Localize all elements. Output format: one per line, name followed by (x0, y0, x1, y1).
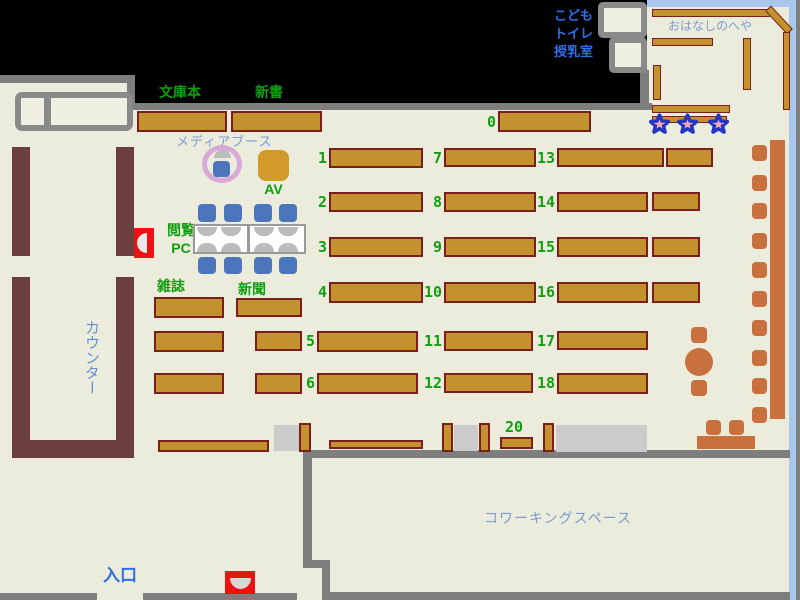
shelf-number: 1 (301, 149, 327, 167)
shelf-number: 3 (301, 238, 327, 256)
shelf-number: 12 (416, 374, 442, 392)
bookshelf-8 (444, 192, 536, 212)
counter-pillar-left (12, 147, 30, 256)
av-booth (258, 150, 289, 181)
bookshelf-3 (329, 237, 423, 257)
stool (752, 291, 767, 307)
story-room-wall-top (647, 0, 796, 7)
newspapers-label: 新聞 (238, 282, 266, 297)
media-booth-desk (214, 150, 231, 158)
pc-chair (279, 204, 297, 222)
shelf-number: 5 (289, 332, 315, 350)
counter-pillar-right (116, 147, 134, 256)
counter-u-left (12, 277, 30, 458)
coworking-wall-bottom (328, 592, 790, 600)
stool (752, 203, 767, 219)
av-label: AV (258, 182, 289, 197)
pc-table-divider (247, 224, 250, 254)
shelf-number: 17 (529, 332, 555, 350)
bookshelf-13 (557, 148, 664, 167)
stool (752, 145, 767, 161)
shelf-number: 8 (416, 193, 442, 211)
bookshelf-extra (652, 282, 700, 303)
bookshelf-14 (557, 192, 648, 212)
bookshelf-16 (557, 282, 648, 303)
stool (691, 327, 707, 343)
staff-table (15, 92, 133, 131)
counter-label: カウンター (84, 320, 98, 420)
wall-kidsroom-connector (640, 70, 649, 110)
bookshelf-7 (444, 148, 536, 167)
stool (706, 420, 721, 435)
coworking-wall-jog-h (303, 560, 330, 568)
floor-right (647, 7, 789, 600)
shelf-number: 11 (416, 332, 442, 350)
magazine-shelf (154, 331, 224, 352)
coworking-wall-left (303, 450, 312, 568)
story-room-label: おはなしのへや (668, 19, 752, 33)
bookshelf-0 (498, 111, 591, 132)
wall-bottom-left (0, 593, 97, 600)
story-room-wall-right (789, 0, 796, 600)
round-table (685, 348, 713, 376)
shelf-number: 18 (529, 374, 555, 392)
bookshelf-12 (444, 373, 533, 393)
stool (691, 380, 707, 396)
side-shelf (543, 423, 554, 452)
kids-toilet-room (598, 2, 647, 38)
nursing-room (609, 37, 647, 73)
pc-label: 閲覧 PC (166, 222, 196, 254)
bench (697, 436, 755, 449)
outer-wall-right (796, 0, 800, 600)
stool (752, 320, 767, 336)
star-icon (707, 113, 730, 136)
stool (752, 378, 767, 394)
bookshelf-1 (329, 148, 423, 168)
star-icon (676, 113, 699, 136)
shelf-number: 10 (416, 283, 442, 301)
shelf-number: 9 (416, 238, 442, 256)
entrance-label: 入口 (103, 568, 137, 583)
shelf-number: 4 (301, 283, 327, 301)
shelf-number: 7 (416, 149, 442, 167)
bookshelf-6 (317, 373, 418, 394)
paperback-label: 文庫本 (159, 85, 201, 100)
counter-u-right (116, 277, 134, 458)
story-shelf (652, 9, 770, 17)
bookshelf-2 (329, 192, 423, 212)
copier (274, 425, 299, 451)
coworking-label: コワーキングスペース (468, 511, 648, 525)
pc-seat-mark (278, 243, 298, 252)
pc-chair (254, 204, 272, 222)
new-books-shelf (231, 111, 322, 132)
magazines-label: 雑誌 (157, 279, 185, 294)
new-books-label: 新書 (255, 85, 283, 100)
kids-label: こども (538, 8, 593, 23)
shelf-number: 2 (301, 193, 327, 211)
shelf-number: 13 (529, 149, 555, 167)
window-bench (770, 140, 785, 419)
shelf-number: 20 (501, 418, 527, 436)
media-booth-chair (213, 161, 230, 177)
counter-u-bottom (12, 440, 133, 458)
side-shelf (442, 423, 453, 452)
stool (752, 233, 767, 249)
nursing-room-label: 授乳室 (538, 44, 593, 59)
side-shelf (479, 423, 490, 452)
bookshelf-10 (444, 282, 536, 303)
pc-chair (198, 257, 216, 274)
staff-table-divider (44, 94, 51, 129)
story-shelf (783, 32, 790, 110)
bookshelf-11 (444, 331, 533, 351)
bookshelf-extra (666, 148, 713, 167)
story-shelf (743, 38, 751, 90)
shelf-number: 6 (289, 374, 315, 392)
stool (752, 350, 767, 366)
shelf-number: 0 (470, 113, 496, 131)
stool (729, 420, 744, 435)
bookshelf-5 (317, 331, 418, 352)
pc-seat-mark (254, 243, 274, 252)
equipment-cabinet (556, 425, 647, 452)
story-shelf (652, 105, 730, 113)
pc-seat-mark (221, 243, 241, 252)
low-shelf (158, 440, 269, 452)
shelf-number: 16 (529, 283, 555, 301)
paperback-shelf (137, 111, 227, 132)
wall-top-main (127, 103, 652, 110)
stool (752, 407, 767, 423)
low-shelf (329, 440, 423, 449)
bookshelf-20 (500, 437, 533, 449)
bookshelf-18 (557, 373, 648, 394)
story-shelf (653, 65, 661, 100)
pc-seat-mark (197, 243, 217, 252)
copier (454, 425, 478, 451)
bookshelf-17 (557, 331, 648, 350)
newspaper-shelf (236, 298, 302, 317)
pc-chair (224, 204, 242, 222)
floor-main (127, 110, 652, 600)
bookshelf-extra (652, 237, 700, 257)
bookshelf-15 (557, 237, 648, 257)
side-shelf (299, 423, 311, 452)
shelf-number: 15 (529, 238, 555, 256)
wall-bottom-center (143, 593, 297, 600)
stool (752, 262, 767, 278)
stool (752, 175, 767, 191)
magazine-shelf (154, 373, 224, 394)
pc-chair (224, 257, 242, 274)
bookshelf-extra (652, 192, 700, 211)
bookshelf-9 (444, 237, 536, 257)
pc-chair (279, 257, 297, 274)
bookshelf-4 (329, 282, 423, 303)
pc-chair (254, 257, 272, 274)
magazine-shelf (154, 297, 224, 318)
pc-chair (198, 204, 216, 222)
star-icon (648, 113, 671, 136)
shelf-number: 14 (529, 193, 555, 211)
library-floor-map: こども トイレ 授乳室 おはなしのへや カウンター 文庫本 新書 0 メディアブ… (0, 0, 800, 600)
story-shelf (652, 38, 713, 46)
toilet-label: トイレ (538, 26, 593, 41)
wall-top-left (0, 75, 135, 83)
